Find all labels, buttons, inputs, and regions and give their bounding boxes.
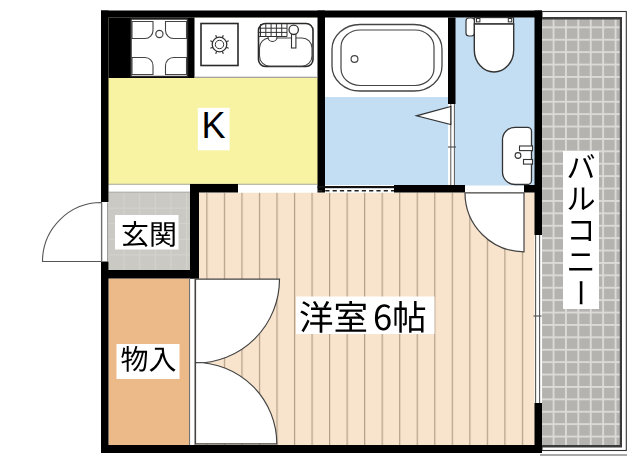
svg-text:K: K (202, 105, 226, 146)
